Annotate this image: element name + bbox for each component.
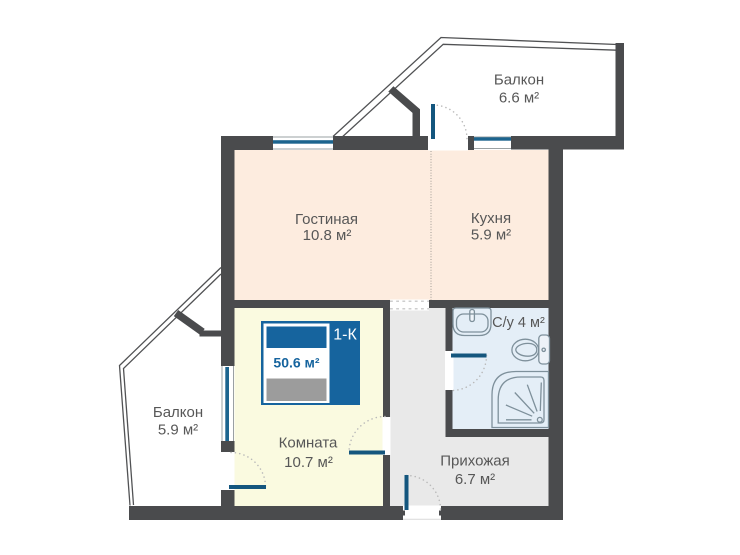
svg-text:50.6 м²: 50.6 м²	[273, 354, 319, 370]
svg-text:Кухня: Кухня	[471, 210, 511, 227]
svg-text:Комната: Комната	[279, 435, 338, 452]
svg-text:Гостиная: Гостиная	[295, 211, 358, 228]
svg-text:5.9 м²: 5.9 м²	[158, 422, 198, 439]
svg-text:6.6 м²: 6.6 м²	[499, 90, 539, 107]
svg-text:Прихожая: Прихожая	[440, 453, 510, 470]
svg-text:1-К: 1-К	[333, 327, 357, 344]
svg-text:С/у 4 м²: С/у 4 м²	[492, 315, 545, 331]
svg-text:Балкон: Балкон	[153, 404, 203, 421]
svg-text:6.7 м²: 6.7 м²	[455, 471, 495, 488]
svg-text:10.7 м²: 10.7 м²	[284, 454, 333, 471]
svg-text:Балкон: Балкон	[494, 72, 544, 89]
svg-text:5.9 м²: 5.9 м²	[471, 226, 511, 243]
svg-text:10.8 м²: 10.8 м²	[303, 227, 352, 244]
